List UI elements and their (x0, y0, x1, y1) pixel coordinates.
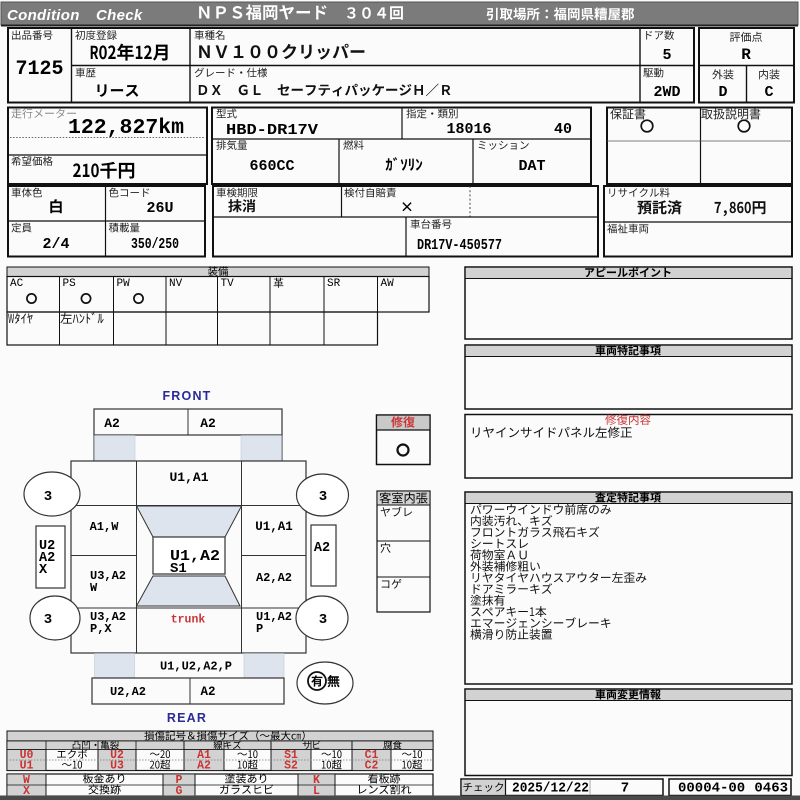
svg-text:R: R (741, 46, 751, 64)
svg-text:U2,A2: U2,A2 (110, 685, 146, 699)
svg-text:AW: AW (381, 278, 395, 290)
svg-text:A2,A2: A2,A2 (256, 571, 292, 585)
svg-text:A2: A2 (314, 541, 330, 556)
svg-text:3: 3 (44, 612, 52, 628)
svg-text:A2: A2 (197, 760, 211, 773)
svg-text:REAR: REAR (167, 711, 207, 725)
svg-text:S1: S1 (170, 561, 187, 577)
svg-text:Check: Check (96, 7, 143, 24)
svg-text:PS: PS (63, 278, 77, 290)
svg-text:5: 5 (662, 47, 671, 64)
svg-text:A2: A2 (104, 416, 120, 431)
svg-text:0463: 0463 (754, 781, 788, 797)
svg-text:P: P (256, 622, 263, 636)
svg-text:7: 7 (621, 781, 629, 797)
svg-text:A2: A2 (200, 416, 216, 431)
svg-text:U1,A1: U1,A1 (169, 470, 208, 485)
svg-text:U1,U2,A2,P: U1,U2,A2,P (160, 660, 232, 674)
svg-text:U1: U1 (20, 760, 34, 773)
svg-text:3: 3 (319, 489, 327, 505)
svg-text:U1,A1: U1,A1 (255, 520, 293, 534)
svg-text:660CC: 660CC (249, 158, 294, 175)
svg-text:3: 3 (319, 612, 327, 628)
svg-text:HBD-DR17V: HBD-DR17V (226, 122, 318, 139)
svg-text:FRONT: FRONT (162, 389, 211, 403)
svg-text:C2: C2 (365, 760, 379, 773)
svg-text:U3: U3 (110, 760, 124, 773)
svg-text:3: 3 (44, 489, 52, 505)
svg-text:SR: SR (327, 278, 341, 290)
svg-text:26U: 26U (146, 200, 173, 217)
svg-text:D: D (718, 84, 727, 101)
svg-text:122,827km: 122,827km (68, 116, 184, 140)
svg-text:NV: NV (169, 278, 183, 290)
svg-text:DAT: DAT (518, 158, 545, 175)
svg-text:A1,W: A1,W (90, 520, 120, 534)
svg-text:S2: S2 (284, 760, 298, 773)
svg-text:AC: AC (10, 278, 24, 290)
svg-text:00004-00: 00004-00 (678, 781, 745, 797)
svg-text:trunk: trunk (171, 614, 206, 627)
svg-text:18016: 18016 (446, 121, 491, 138)
svg-text:TV: TV (221, 278, 235, 290)
svg-text:C: C (764, 84, 773, 101)
svg-text:W: W (90, 581, 98, 595)
svg-text:X: X (39, 563, 48, 578)
svg-text:A2: A2 (200, 685, 215, 699)
svg-text:PW: PW (117, 278, 131, 290)
svg-text:2025/12/22: 2025/12/22 (512, 781, 589, 797)
svg-text:7125: 7125 (15, 58, 63, 81)
svg-text:2WD: 2WD (653, 84, 680, 101)
svg-text:350/250: 350/250 (131, 236, 179, 253)
svg-text:40: 40 (554, 121, 572, 138)
svg-text:Condition: Condition (7, 7, 80, 24)
svg-text:2/4: 2/4 (42, 236, 69, 253)
svg-text:P,X: P,X (90, 622, 112, 636)
svg-text:DR17V-450577: DR17V-450577 (417, 237, 502, 254)
